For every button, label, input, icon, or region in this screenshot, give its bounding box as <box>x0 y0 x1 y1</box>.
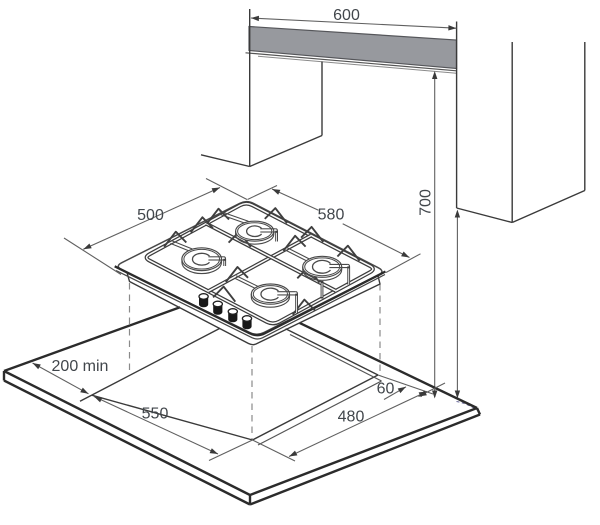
svg-text:600: 600 <box>333 7 360 24</box>
svg-text:500: 500 <box>137 207 164 224</box>
svg-text:580: 580 <box>318 207 345 224</box>
svg-text:60: 60 <box>377 381 395 398</box>
svg-text:200 min: 200 min <box>52 358 109 375</box>
svg-text:700: 700 <box>418 189 435 216</box>
svg-text:480: 480 <box>338 409 365 426</box>
svg-text:550: 550 <box>142 406 169 423</box>
